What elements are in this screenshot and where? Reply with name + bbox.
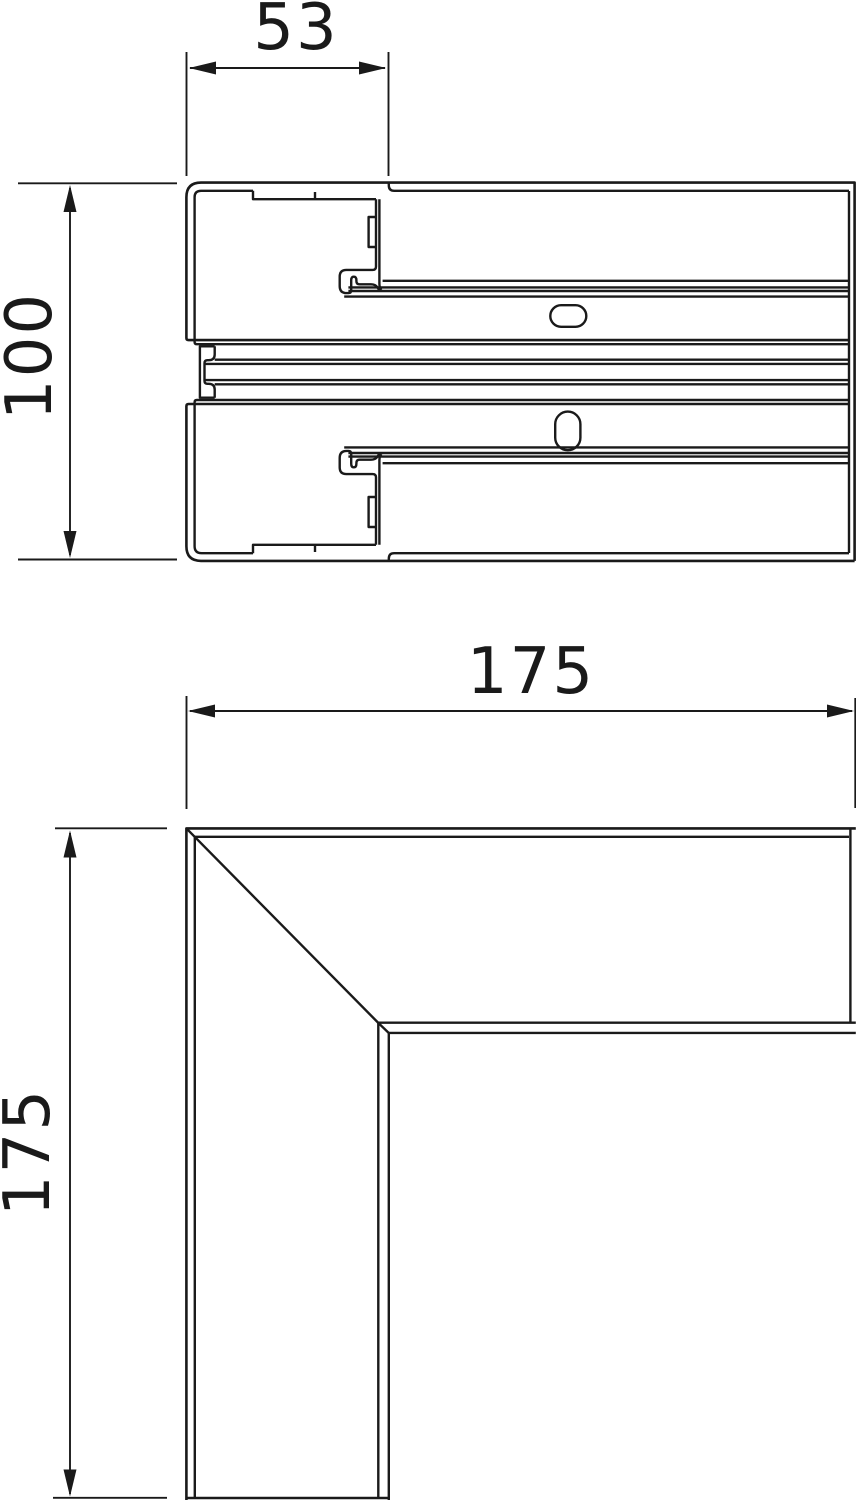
profile-outline-bottom	[186, 404, 854, 561]
arrowhead-bottom	[64, 1470, 77, 1497]
corner-inner-miter-diagonal	[378, 1023, 389, 1033]
corner-inner-edge	[378, 1023, 856, 1498]
dimension-width-53	[187, 52, 389, 176]
technical-drawing-page: 53 100 175 175	[0, 0, 856, 1500]
profile-outline-top	[186, 183, 854, 561]
arrowhead-right	[827, 705, 854, 718]
dim-label-profile-width: 53	[253, 0, 338, 60]
profile-lower-cover-seam	[389, 553, 849, 561]
corner-inner-fold-line	[389, 1033, 856, 1500]
arrowhead-bottom	[64, 531, 77, 558]
drawing-canvas	[0, 0, 856, 1500]
arrowhead-left	[188, 705, 215, 718]
profile-upper-cover-seam	[389, 183, 849, 191]
profile-separator-channel-outer	[200, 346, 215, 397]
extension-lines	[187, 696, 856, 809]
profile-lower-rail-band	[344, 447, 849, 463]
arrowhead-top	[64, 185, 77, 212]
profile-separator-channel-hooks	[205, 346, 215, 397]
profile-inner-lower-left	[195, 400, 849, 553]
profile-upper-wall-outer	[379, 199, 381, 290]
profile-view	[186, 183, 854, 561]
dim-label-profile-height: 100	[0, 292, 62, 420]
corner-view	[186, 828, 855, 1500]
dimension-corner-width-175	[187, 696, 856, 809]
profile-slot-horizontal	[550, 305, 586, 327]
profile-upper-rail-band	[344, 281, 849, 297]
profile-inner-upper-left	[195, 191, 849, 344]
dim-label-corner-width: 175	[467, 640, 595, 704]
profile-middle-rails	[205, 360, 849, 385]
dimension-corner-height-175	[53, 828, 167, 1498]
extension-lines	[187, 52, 389, 176]
arrowhead-right	[359, 62, 386, 75]
arrowhead-top	[64, 831, 77, 858]
arrowhead-left	[189, 62, 216, 75]
profile-lower-wall-outer	[379, 454, 381, 545]
profile-slot-vertical	[555, 412, 580, 451]
corner-miter-diagonal	[187, 829, 378, 1023]
dim-label-corner-height: 175	[0, 1088, 60, 1216]
